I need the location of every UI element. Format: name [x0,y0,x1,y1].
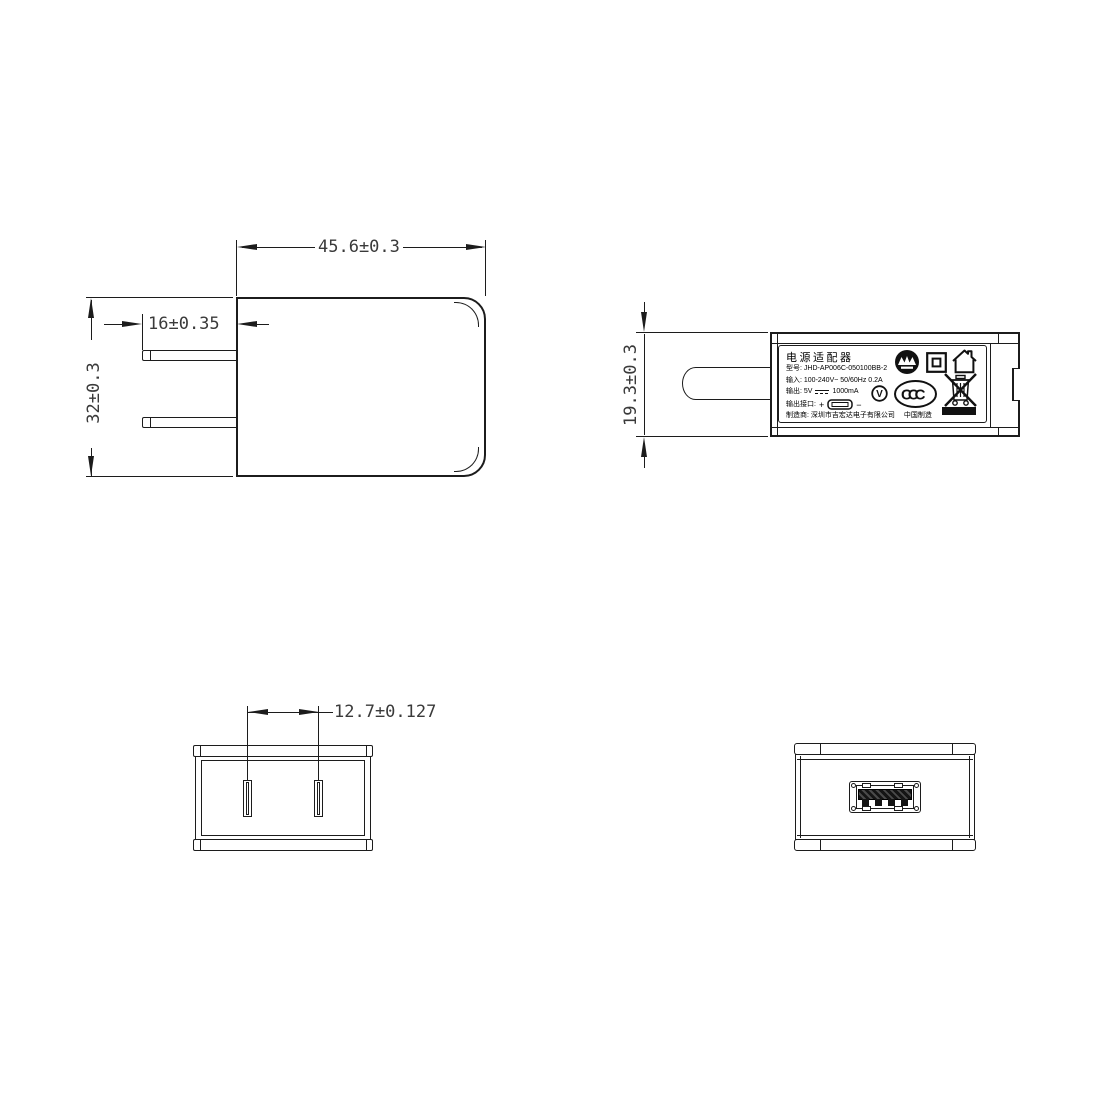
arrowhead-left [237,244,257,250]
side-usb-notch-top [1013,368,1020,369]
usb-port-corner-screw [914,783,919,788]
rear-inner-wall-right [969,756,970,838]
side-rail-tick [998,428,999,437]
arrowhead-right [122,321,142,327]
front-prong-length-dimension: 16±0.35 [148,315,220,333]
extension-line [86,297,233,298]
front-prong-lower [142,417,238,428]
extension-line [636,436,768,437]
label-manufacturer: 制造商: 深圳市吉宏达电子有限公司 中国制造 [786,412,932,420]
cap-tick [952,840,953,850]
rear-bottom-cap [794,839,976,851]
usb-contact [901,799,908,806]
manufacturer-text: 制造商: 深圳市吉宏达电子有限公司 [786,412,895,419]
side-prong-profile [682,367,774,400]
cap-tick [200,840,201,850]
front-height-dimension: 32±0.3 [85,348,103,438]
front-body-outline [236,297,486,477]
bottom-pin-slot-right-inner [317,782,320,815]
usb-port-notch [862,806,871,811]
svg-text:CCC: CCC [901,387,926,404]
arrowhead-up [88,298,94,318]
rear-inner-wall-bottom [797,835,973,836]
front-prong-lower-tip-line [150,418,151,427]
label-output: 输出: 5V 1000mA [786,388,859,396]
product-label: 电源适配器 型号: JHD-AP006C-050100BB-2 输入: 100-… [778,345,987,423]
label-output-current: 1000mA [832,388,858,396]
side-rail-tick [998,334,999,343]
dimension-stub [644,457,645,468]
label-model: 型号: JHD-AP006C-050100BB-2 [786,365,887,373]
arrowhead-down [641,312,647,332]
usb-port-notch [862,783,871,788]
usb-contact [862,799,869,806]
side-thickness-dimension: 19.3±0.3 [622,335,640,435]
usb-contact [875,799,882,806]
weee-bin-icon [943,371,978,408]
arrowhead-down [88,456,94,476]
label-input: 输入: 100-240V~ 50/60Hz 0.2A [786,377,883,385]
cap-tick [366,746,367,756]
side-usb-notch-line [1012,368,1014,401]
bottom-pin-pitch-dimension: 12.7±0.127 [334,703,436,721]
front-prong-upper [142,350,238,361]
rear-inner-wall-left [800,756,801,838]
label-port: 输出接口: + − [786,399,861,410]
side-usb-notch-bottom [1013,400,1020,401]
arrowhead-right [466,244,486,250]
arrowhead-left [248,709,268,715]
label-title: 电源适配器 [786,349,854,365]
extension-line [318,706,319,780]
extension-line [142,314,143,350]
svg-text:V: V [876,389,883,400]
plus-sign: + [819,401,824,409]
technical-drawing-canvas: 45.6±0.3 16±0.35 32±0.3 19.3±0.3 电源适配器 型… [0,0,1100,1100]
cap-tick [820,744,821,754]
bottom-body-inner [201,760,365,836]
arrowhead-right [299,709,319,715]
efficiency-v-icon: V [871,385,888,402]
dimension-tail [257,324,269,325]
extension-line [247,706,248,780]
cap-tick [952,744,953,754]
double-insulation-icon [926,352,947,373]
cap-tick [200,746,201,756]
usb-contact [888,799,895,806]
side-top-rail-line [772,343,1018,344]
label-port-prefix: 输出接口: [786,401,816,409]
arrowhead-left [237,321,257,327]
dc-voltage-icon [815,390,829,395]
front-prong-upper-tip-line [150,351,151,360]
usb-port-notch [894,806,903,811]
cap-tick [820,840,821,850]
label-output-prefix: 输出: 5V [786,388,812,396]
made-in-text: 中国制造 [904,412,932,419]
bottom-pin-slot-left-inner [246,782,249,815]
dimension-tail [104,324,123,325]
side-end-seam-line [990,344,991,427]
extension-line [86,476,233,477]
side-bottom-rail-line [772,427,1018,428]
bottom-bottom-cap [193,839,373,851]
rear-inner-wall-top [797,759,973,760]
minus-sign: − [856,401,861,409]
weee-date-bar [942,407,976,415]
front-width-dimension: 45.6±0.3 [315,238,403,256]
usb-port-notch [894,783,903,788]
usb-port-corner-screw [914,806,919,811]
certification-mark-icon [894,349,920,375]
dimension-line [644,334,645,435]
ccc-mark-icon: CCC [893,379,938,409]
cap-tick [366,840,367,850]
extension-line [636,332,768,333]
arrowhead-up [641,437,647,457]
usb-plug-icon [827,399,853,410]
side-notch-mask [1015,369,1024,400]
